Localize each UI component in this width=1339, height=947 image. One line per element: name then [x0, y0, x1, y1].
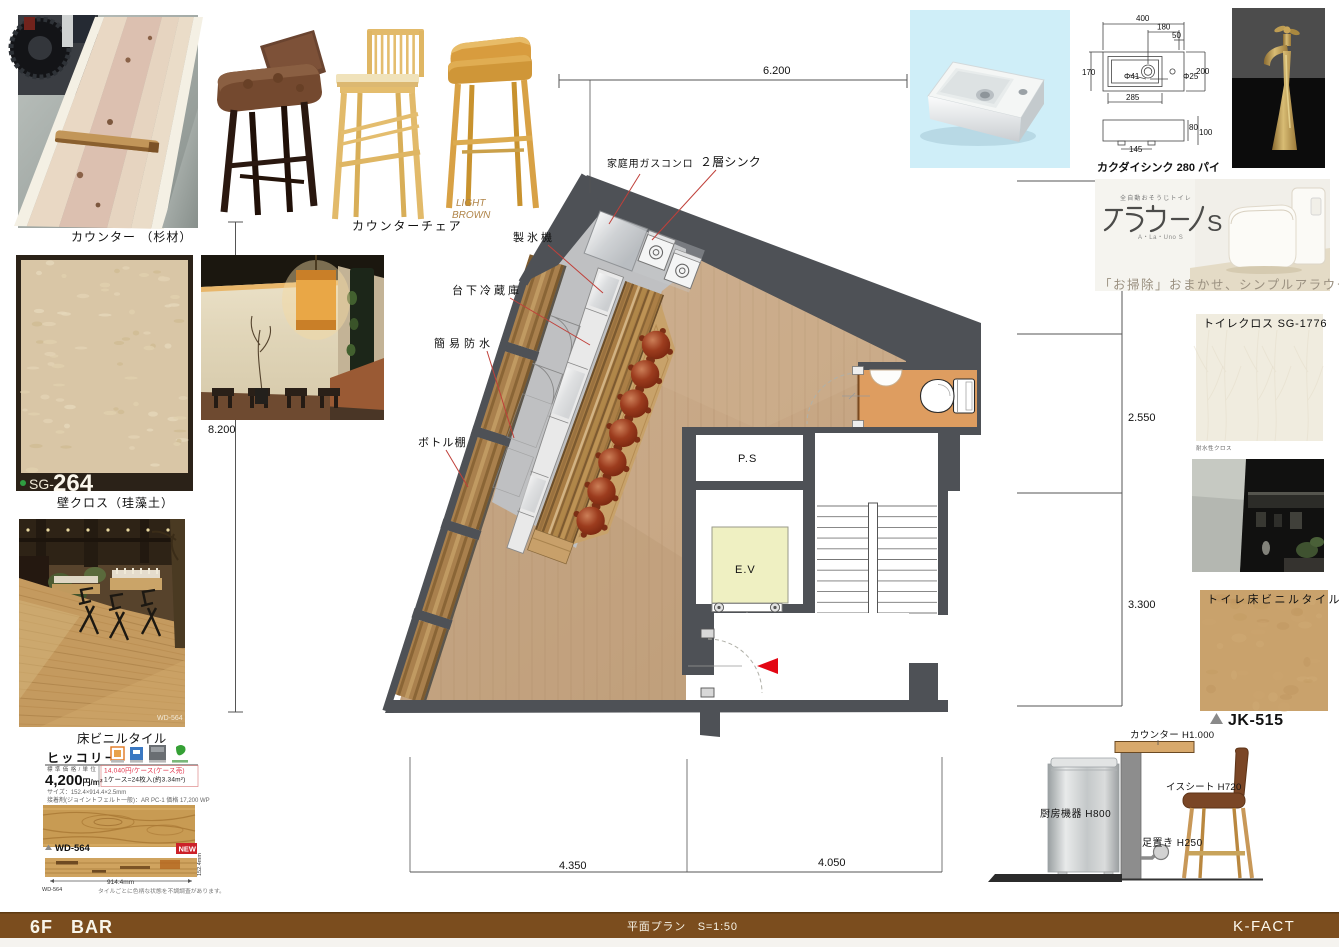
svg-text:180: 180: [1157, 23, 1171, 32]
svg-text:3.300: 3.300: [1128, 599, 1156, 611]
svg-text:264: 264: [53, 470, 94, 497]
svg-text:WD-564: WD-564: [42, 887, 62, 893]
svg-text:8.200: 8.200: [208, 424, 236, 436]
svg-text:JK-515: JK-515: [1228, 712, 1283, 729]
svg-text:E.V: E.V: [735, 564, 756, 576]
svg-text:100: 100: [1199, 128, 1213, 137]
svg-text:足置き H250: 足置き H250: [1142, 837, 1203, 849]
svg-text:2.550: 2.550: [1128, 412, 1156, 424]
svg-text:145: 145: [1129, 145, 1143, 154]
svg-text:14,040円/ケース(ケース売): 14,040円/ケース(ケース売): [104, 766, 185, 775]
svg-text:平面プラン S=1:50: 平面プラン S=1:50: [627, 920, 738, 933]
svg-text:「お掃除」おまかせ、シンプルアラウーノ。: 「お掃除」おまかせ、シンプルアラウーノ。: [1099, 277, 1339, 292]
svg-text:トイレ床ビニルタイル: トイレ床ビニルタイル: [1207, 592, 1339, 606]
svg-text:170: 170: [1082, 68, 1096, 77]
svg-text:SG-: SG-: [29, 476, 54, 492]
svg-text:カウンターチェア: カウンターチェア: [352, 219, 462, 233]
svg-text:２層シンク: ２層シンク: [700, 155, 761, 169]
svg-text:厨房機器 H800: 厨房機器 H800: [1040, 807, 1111, 820]
svg-text:152.4mm: 152.4mm: [197, 853, 203, 876]
svg-text:1ケース=24枚入(約3.34m²): 1ケース=24枚入(約3.34m²): [104, 775, 185, 784]
svg-text:4.350: 4.350: [559, 860, 587, 872]
svg-text:カウンター H1.000: カウンター H1.000: [1130, 730, 1214, 741]
svg-text:S: S: [1207, 210, 1222, 236]
svg-text:914.4mm: 914.4mm: [107, 879, 134, 886]
svg-text:家庭用ガスコンロ: 家庭用ガスコンロ: [607, 157, 693, 170]
svg-text:Φ41: Φ41: [1124, 72, 1140, 81]
svg-text:NEW: NEW: [179, 845, 197, 854]
svg-text:WD-564: WD-564: [55, 843, 91, 854]
svg-text:ヒッコリー: ヒッコリー: [47, 751, 119, 765]
svg-text:K-FACT: K-FACT: [1233, 918, 1295, 935]
svg-text:カクダイシンク 280 パイ: カクダイシンク 280 パイ: [1097, 160, 1220, 174]
svg-text:床ビニルタイル: 床ビニルタイル: [77, 732, 167, 746]
svg-text:LIGHT: LIGHT: [456, 198, 486, 209]
svg-text:簡易防水: 簡易防水: [434, 336, 494, 350]
svg-text:80: 80: [1189, 123, 1198, 132]
svg-text:4.050: 4.050: [818, 857, 846, 869]
svg-text:400: 400: [1136, 14, 1150, 23]
svg-text:トイレクロス SG-1776: トイレクロス SG-1776: [1203, 317, 1327, 330]
svg-text:A・La・Uno S: A・La・Uno S: [1138, 235, 1183, 241]
svg-text:製氷機: 製氷機: [513, 230, 555, 244]
svg-text:50: 50: [1172, 31, 1181, 40]
svg-text:壁クロス（珪藻土）: 壁クロス（珪藻土）: [57, 495, 174, 510]
svg-text:6.200: 6.200: [763, 65, 791, 77]
svg-text:6F BAR: 6F BAR: [30, 917, 113, 937]
svg-text:Φ25: Φ25: [1183, 72, 1199, 81]
svg-text:サイズ：152.4×914.4×2.5mm: サイズ：152.4×914.4×2.5mm: [47, 788, 126, 796]
svg-text:接着剤(ジョイントフェルト一般)：AR PC-1 価格 17: 接着剤(ジョイントフェルト一般)：AR PC-1 価格 17,200 WP: [47, 796, 210, 804]
svg-text:285: 285: [1126, 93, 1140, 102]
svg-text:耐水性クロス: 耐水性クロス: [1196, 444, 1232, 452]
svg-text:ボトル棚: ボトル棚: [418, 435, 467, 449]
svg-text:台下冷蔵庫: 台下冷蔵庫: [452, 283, 522, 297]
svg-text:P.S: P.S: [738, 453, 757, 465]
svg-text:WD-564: WD-564: [157, 715, 183, 722]
svg-text:全自動おそうじトイレ: 全自動おそうじトイレ: [1120, 194, 1192, 202]
svg-text:4,200円/m²: 4,200円/m²: [45, 772, 103, 789]
svg-text:カウンター （杉材）: カウンター （杉材）: [71, 230, 192, 244]
svg-text:タイルごとに色柄な状態を不調調査があります。: タイルごとに色柄な状態を不調調査があります。: [98, 887, 225, 895]
svg-text:イスシート H720: イスシート H720: [1166, 782, 1242, 793]
